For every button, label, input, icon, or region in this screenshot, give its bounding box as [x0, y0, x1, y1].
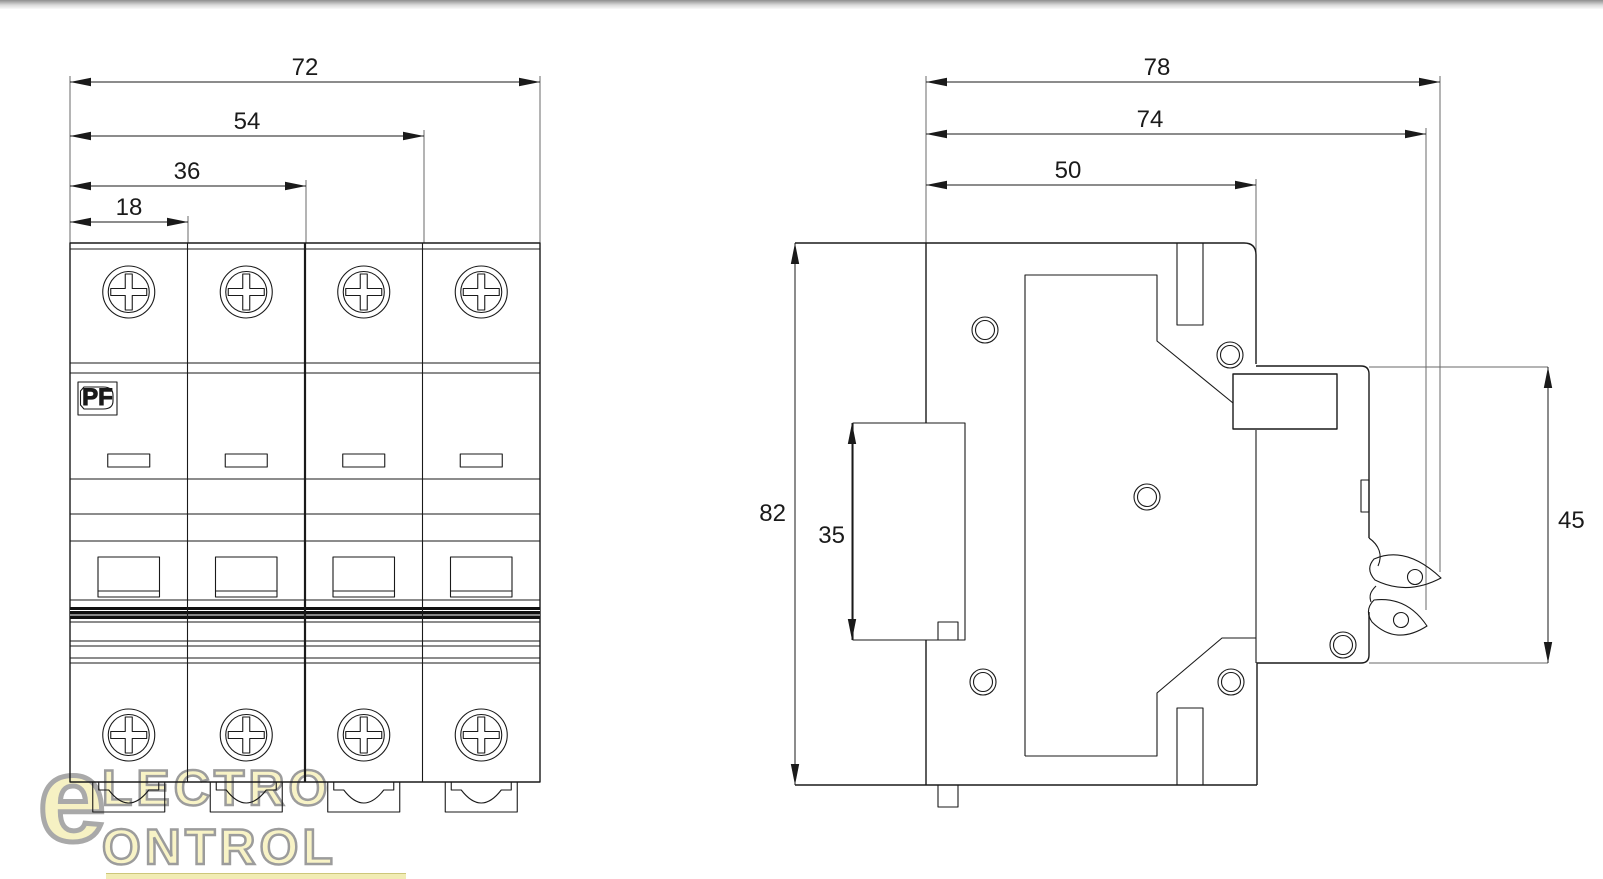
arrow-left-icon	[70, 78, 91, 86]
dimension-78: 78	[926, 54, 1440, 86]
dim-label-35: 35	[818, 522, 845, 549]
screw-icon	[338, 709, 390, 761]
arrow-right-icon	[167, 218, 188, 226]
din-foot-tab	[938, 785, 958, 807]
top-slot	[1177, 243, 1203, 325]
dimension-18: 18	[70, 194, 188, 226]
side-view: 78 74 50 82	[759, 54, 1584, 807]
arrow-left-icon	[926, 78, 947, 86]
screw-icon	[103, 709, 155, 761]
screw-icon	[455, 709, 507, 761]
arrow-left-icon	[926, 181, 947, 189]
arrow-right-icon	[1419, 78, 1440, 86]
arrow-up-icon	[791, 243, 799, 264]
dim-label-36: 36	[174, 158, 201, 185]
bottom-terminal-clips	[93, 782, 518, 812]
dimension-35: 35	[818, 423, 856, 640]
dim-label-74: 74	[1137, 106, 1164, 133]
screw-icon	[220, 266, 272, 318]
dimension-82: 82	[759, 243, 799, 785]
toggle-handle-side	[1233, 374, 1337, 429]
arrow-right-icon	[1405, 130, 1426, 138]
dim-label-78: 78	[1144, 54, 1171, 81]
front-edge-rib	[1361, 480, 1369, 512]
terminal-leaf-lower	[1368, 600, 1427, 636]
dim-label-82: 82	[759, 500, 786, 527]
arrow-up-icon	[848, 423, 856, 444]
dimension-74: 74	[926, 106, 1426, 138]
arrow-left-icon	[926, 130, 947, 138]
dim-label-72: 72	[292, 54, 319, 81]
screw-icon	[338, 266, 390, 318]
screw-icon	[220, 709, 272, 761]
bottom-slot	[1177, 708, 1203, 785]
arrow-down-icon	[1544, 642, 1552, 663]
arrow-right-icon	[285, 182, 306, 190]
arrow-left-icon	[70, 218, 91, 226]
terminal-spring-clips	[1368, 555, 1441, 635]
dimension-54: 54	[70, 108, 424, 140]
dimension-36: 36	[70, 158, 306, 190]
side-extension-lines	[795, 76, 1548, 785]
technical-drawing-canvas: 72 54 36 18	[0, 0, 1603, 879]
dim-label-54: 54	[234, 108, 261, 135]
arrow-down-icon	[791, 764, 799, 785]
front-view: 72 54 36 18	[70, 54, 540, 812]
pf-label: PF	[82, 384, 113, 411]
arrow-left-icon	[70, 182, 91, 190]
screw-icon	[455, 266, 507, 318]
arrow-right-icon	[403, 132, 424, 140]
breaker-side-body	[795, 243, 1380, 785]
arrow-right-icon	[1235, 181, 1256, 189]
dim-label-18: 18	[116, 194, 143, 221]
dimension-72: 72	[70, 54, 540, 86]
arrow-up-icon	[1544, 367, 1552, 388]
dimension-45: 45	[1544, 367, 1585, 663]
pole-dividers	[188, 243, 423, 782]
arrow-right-icon	[519, 78, 540, 86]
screw-icon	[103, 266, 155, 318]
dim-label-45: 45	[1558, 507, 1585, 534]
dim-label-50: 50	[1055, 157, 1082, 184]
arrow-down-icon	[848, 619, 856, 640]
din-rail-channel	[853, 423, 965, 640]
dimension-50: 50	[926, 157, 1256, 189]
drawing-page: e LECTRO ONTROL	[0, 0, 1603, 879]
pf-badge: PF	[78, 382, 117, 415]
arrow-left-icon	[70, 132, 91, 140]
din-latch-notch	[938, 622, 958, 640]
